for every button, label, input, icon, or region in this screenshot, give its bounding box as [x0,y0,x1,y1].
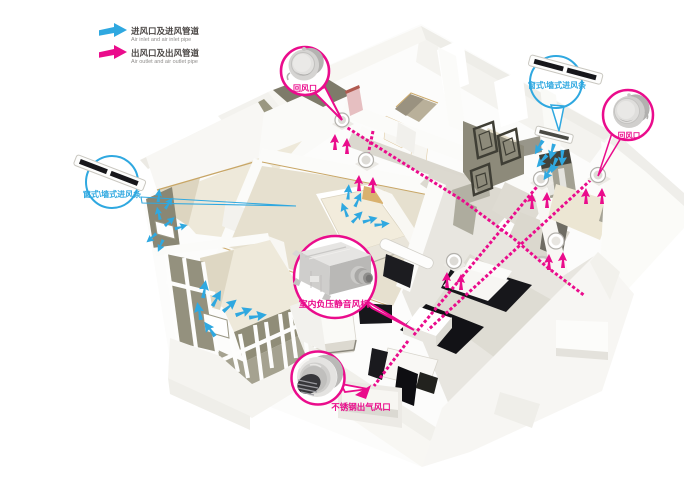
svg-text:窗式\墙式进风条: 窗式\墙式进风条 [83,189,142,199]
svg-text:进风口及进风管道: 进风口及进风管道 [131,26,200,36]
svg-text:Air inlet and air inlet pipe: Air inlet and air inlet pipe [131,37,191,43]
svg-text:出风口及出风管道: 出风口及出风管道 [131,48,200,58]
svg-text:回风口: 回风口 [618,131,641,140]
svg-text:室内负压静音风机: 室内负压静音风机 [299,298,370,309]
svg-text:回风口: 回风口 [293,84,317,93]
svg-text:不锈钢出气风口: 不锈钢出气风口 [331,402,391,412]
svg-text:Air outlet and air outlet pipe: Air outlet and air outlet pipe [131,59,198,65]
svg-text:窗式\墙式进风条: 窗式\墙式进风条 [528,80,587,90]
